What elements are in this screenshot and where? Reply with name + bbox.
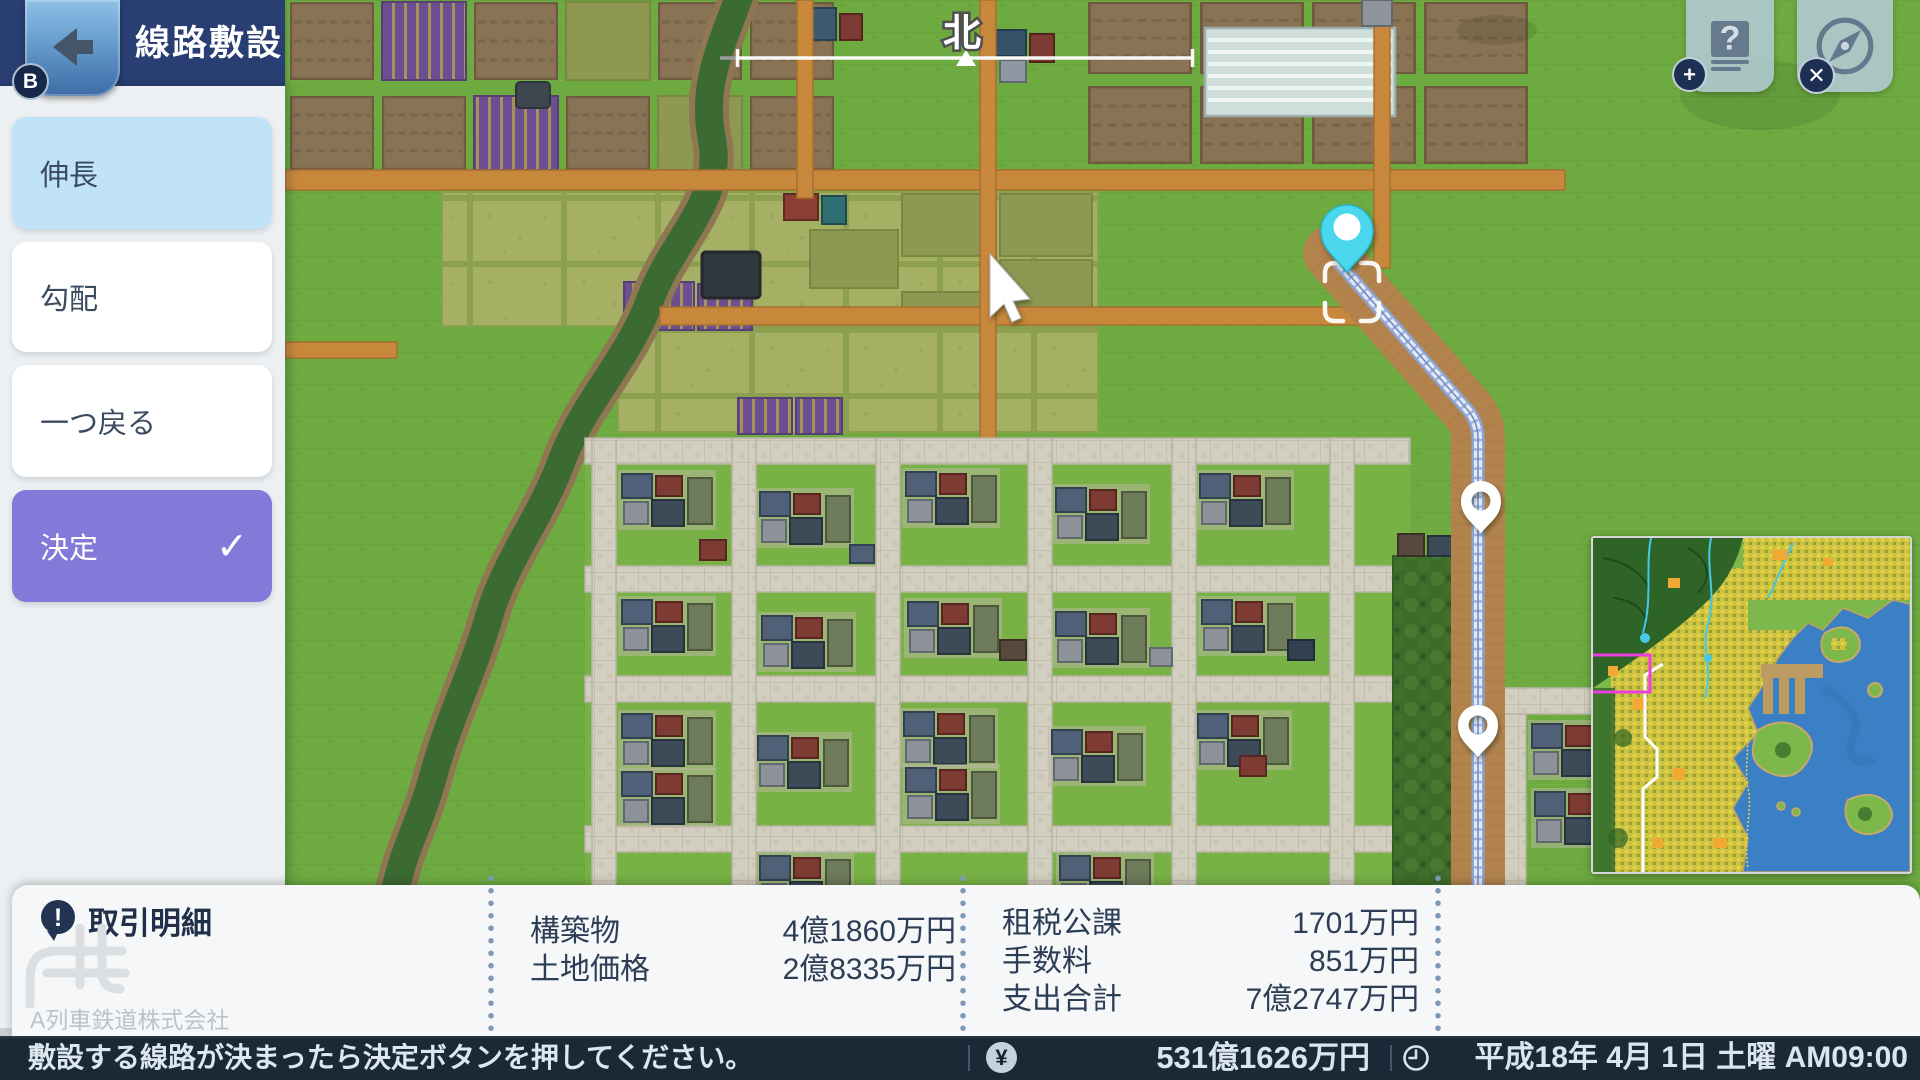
sidebar-button-extend[interactable]: 伸長 [12, 117, 272, 229]
clock-icon [1402, 1044, 1430, 1072]
funds-amount: 531億1626万円 [1040, 1036, 1370, 1080]
cloud-shadow [1457, 15, 1537, 45]
cost-value: 2億8335万円 [783, 944, 956, 988]
cost-row: 支出合計 7億2747万円 [1002, 974, 1419, 1018]
cost-row: 土地価格 2億8335万円 [530, 944, 956, 988]
sidebar-button-gradient[interactable]: 勾配 [12, 242, 272, 352]
yen-glyph: ¥ [995, 1045, 1007, 1071]
controller-b-badge: B [12, 63, 49, 100]
divider [1390, 1045, 1392, 1071]
question-glyph: ? [1720, 19, 1741, 58]
check-icon: ✓ [216, 524, 248, 569]
panel-separator [960, 872, 966, 1034]
panel-separator [1435, 872, 1441, 1034]
back-arrow-icon [47, 22, 97, 72]
close-icon: ✕ [1807, 63, 1825, 89]
company-watermark-text: A列車鉄道株式会社 [30, 1001, 229, 1035]
b-glyph: B [23, 70, 38, 94]
cost-label: 支出合計 [1002, 974, 1122, 1018]
minimap[interactable] [1591, 536, 1912, 874]
yen-icon: ¥ [986, 1042, 1017, 1073]
small-building [1362, 0, 1392, 26]
panel-separator [488, 872, 494, 1034]
datetime-text: 平成18年 4月 1日 土曜 AM09:00 [1448, 1036, 1908, 1080]
button-label: 一つ戻る [40, 400, 156, 442]
page-title: 線路敷設 [135, 15, 283, 66]
cost-value: 7億2747万円 [1246, 974, 1419, 1018]
sidebar-button-confirm[interactable]: 決定 ✓ [12, 490, 272, 602]
sidebar-button-undo[interactable]: 一つ戻る [12, 365, 272, 477]
company-logo-watermark [22, 923, 152, 1008]
close-button-badge[interactable]: ✕ [1798, 57, 1835, 94]
cost-column-1: 構築物 4億1860万円 土地価格 2億8335万円 [530, 885, 956, 1036]
north-label: 北 [943, 13, 981, 55]
button-label: 勾配 [40, 276, 98, 318]
button-label: 伸長 [40, 152, 98, 194]
divider [968, 1045, 970, 1071]
button-label: 決定 [40, 525, 98, 567]
game-screen: 北 [0, 0, 1920, 1080]
greenhouse [1205, 28, 1395, 116]
cost-label: 土地価格 [530, 944, 650, 988]
tree-sheds [1398, 534, 1452, 556]
status-bar: 敷設する線路が決まったら決定ボタンを押してください。 ¥ 531億1626万円 … [0, 1036, 1920, 1080]
plus-button-badge[interactable]: + [1672, 57, 1707, 92]
cost-column-2: 租税公課 1701万円 手数料 851万円 支出合計 7億2747万円 [1002, 885, 1419, 1036]
transaction-panel: ! 取引明細 A列車鉄道株式会社 構築物 4億1860万円 土地価格 2億833… [12, 885, 1920, 1036]
plus-icon: + [1683, 62, 1696, 88]
instruction-text: 敷設する線路が決まったら決定ボタンを押してください。 [28, 1036, 753, 1080]
